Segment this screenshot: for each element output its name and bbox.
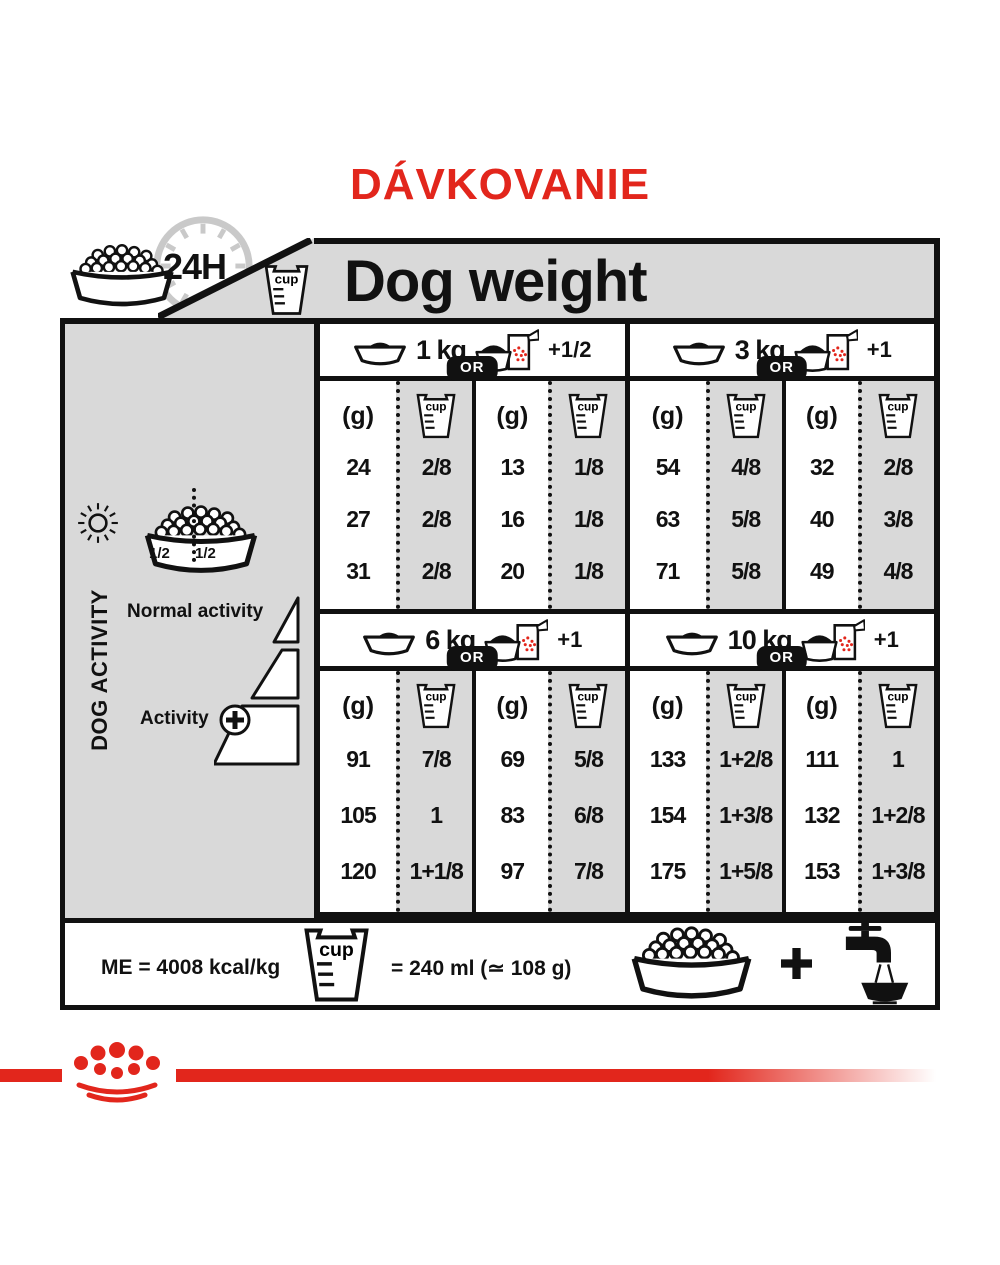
mixed-cup-column: cup 1/8 1/8 1/8 — [548, 381, 624, 609]
crown-logo-icon — [64, 1040, 170, 1106]
measuring-cup-icon: cup — [415, 393, 457, 439]
mixed-grams-column: (g) 69 83 97 — [472, 671, 548, 912]
value-cell: 5/8 — [731, 558, 760, 585]
or-badge: OR — [757, 356, 808, 381]
cup-equivalence: = 240 ml (≃ 108 g) — [391, 956, 571, 981]
split-ration-bowl-icon — [140, 503, 262, 578]
values-10kg: (g) 133 154 175 cup 1+2/8 1+3/8 1+5/8 (g… — [630, 671, 935, 912]
energy-value: ME = 4008 kcal/kg — [101, 956, 280, 980]
value-cell: 7/8 — [574, 858, 603, 885]
svg-text:cup: cup — [735, 399, 756, 413]
value-cell: 1+3/8 — [871, 858, 924, 885]
dog-bowl-icon — [665, 627, 719, 658]
mixed-grams-column: (g) 111 132 153 — [782, 671, 858, 912]
value-cell: 5/8 — [574, 746, 603, 773]
dry-cup-column: cup 1+2/8 1+3/8 1+5/8 — [706, 671, 782, 912]
value-cell: 1/8 — [574, 506, 603, 533]
measuring-cup-icon: cup — [567, 393, 609, 439]
feeding-guide-page: DÁVKOVANIE 24H cup Dog weight — [0, 0, 1000, 1265]
value-cell: 1+2/8 — [719, 746, 772, 773]
value-cell: 2/8 — [422, 558, 451, 585]
or-badge: OR — [757, 646, 808, 671]
moon-icon — [263, 505, 293, 537]
dog-bowl-icon — [672, 337, 726, 368]
values-6kg: (g) 91 105 120 cup 7/8 1 1+1/8 (g) 69 83… — [320, 671, 625, 912]
measuring-cup-icon: cup — [877, 683, 919, 729]
svg-text:cup: cup — [887, 689, 908, 703]
value-cell: 1+5/8 — [719, 858, 772, 885]
values-1kg: (g) 24 27 31 cup 2/8 2/8 2/8 (g) 13 16 2… — [320, 381, 625, 609]
page-title: DÁVKOVANIE — [0, 160, 1000, 210]
half-ration-left: 1/2 — [149, 545, 170, 562]
value-cell: 111 — [805, 746, 838, 773]
value-cell: 2/8 — [883, 454, 912, 481]
grams-header: (g) — [652, 402, 684, 431]
plus-circle-icon — [217, 702, 253, 738]
grams-header: (g) — [496, 402, 528, 431]
svg-text:cup: cup — [426, 689, 447, 703]
grams-header: (g) — [496, 692, 528, 721]
value-cell: 132 — [804, 802, 839, 829]
plus-icon — [781, 948, 812, 979]
sidebar-title: DOG ACTIVITY — [87, 585, 113, 755]
dry-grams-column: (g) 54 63 71 — [630, 381, 706, 609]
dog-weight-header: Dog weight — [314, 238, 940, 318]
measuring-cup-icon: cup — [725, 393, 767, 439]
mixed-cup-column: cup 5/8 6/8 7/8 — [548, 671, 624, 912]
mixed-grams-column: (g) 32 40 49 — [782, 381, 858, 609]
value-cell: 5/8 — [731, 506, 760, 533]
measuring-cup-icon: cup — [415, 683, 457, 729]
value-cell: 63 — [656, 506, 680, 533]
activity-plus-label: Activity — [140, 708, 209, 730]
or-badge: OR — [447, 356, 498, 381]
water-tap-icon — [819, 921, 915, 1006]
value-cell: 69 — [501, 746, 525, 773]
or-badge: OR — [447, 646, 498, 671]
dog-bowl-icon — [353, 337, 407, 368]
extra-pouch-label: +1 — [867, 337, 892, 363]
value-cell: 3/8 — [883, 506, 912, 533]
value-cell: 83 — [501, 802, 525, 829]
value-cell: 175 — [650, 858, 685, 885]
brand-line-right — [176, 1069, 936, 1082]
value-cell: 1 — [892, 746, 904, 773]
value-cell: 7/8 — [422, 746, 451, 773]
value-cell: 120 — [340, 858, 375, 885]
grams-header: (g) — [806, 402, 838, 431]
value-cell: 2/8 — [422, 506, 451, 533]
value-cell: 27 — [346, 506, 370, 533]
svg-text:cup: cup — [887, 399, 908, 413]
mixed-cup-column: cup 2/8 3/8 4/8 — [858, 381, 934, 609]
mixed-grams-column: (g) 13 16 20 — [472, 381, 548, 609]
value-cell: 31 — [346, 558, 370, 585]
value-cell: 97 — [501, 858, 525, 885]
value-cell: 13 — [501, 454, 525, 481]
dry-cup-column: cup 7/8 1 1+1/8 — [396, 671, 472, 912]
value-cell: 4/8 — [731, 454, 760, 481]
dry-grams-column: (g) 133 154 175 — [630, 671, 706, 912]
value-cell: 16 — [501, 506, 525, 533]
svg-text:cup: cup — [426, 399, 447, 413]
value-cell: 105 — [340, 802, 375, 829]
extra-pouch-label: +1/2 — [548, 337, 591, 363]
activity-level-steps — [214, 596, 304, 770]
value-cell: 4/8 — [883, 558, 912, 585]
value-cell: 6/8 — [574, 802, 603, 829]
weight-header-3kg: 3 kg +1 OR — [630, 324, 935, 376]
bowl-plus-pouch-icon — [801, 618, 865, 668]
svg-text:cup: cup — [319, 939, 354, 961]
weight-header-1kg: 1 kg +1/2 OR — [320, 324, 625, 376]
value-cell: 71 — [656, 558, 680, 585]
dog-weight-title: Dog weight — [344, 248, 647, 315]
value-cell: 24 — [346, 454, 370, 481]
extra-pouch-label: +1 — [874, 627, 899, 653]
values-3kg: (g) 54 63 71 cup 4/8 5/8 5/8 (g) 32 40 4… — [630, 381, 935, 609]
value-cell: 32 — [810, 454, 834, 481]
weight-header-10kg: 10 kg +1 OR — [630, 614, 935, 666]
value-cell: 40 — [810, 506, 834, 533]
feeding-table: 1 kg +1/2 OR 3 kg +1 OR (g) 24 27 31 cup… — [314, 318, 940, 918]
kibble-bowl-icon — [625, 924, 758, 1004]
measuring-cup-icon: cup — [725, 683, 767, 729]
mixed-cup-column: cup 1 1+2/8 1+3/8 — [858, 671, 934, 912]
value-cell: 2/8 — [422, 454, 451, 481]
measuring-cup-icon: cup — [263, 264, 310, 316]
value-cell: 133 — [650, 746, 685, 773]
footer-info-bar: ME = 4008 kcal/kg cup = 240 ml (≃ 108 g) — [60, 918, 940, 1010]
grams-header: (g) — [342, 692, 374, 721]
dog-bowl-icon — [362, 627, 416, 658]
value-cell: 1+2/8 — [871, 802, 924, 829]
value-cell: 91 — [346, 746, 370, 773]
value-cell: 1/8 — [574, 558, 603, 585]
svg-text:cup: cup — [578, 689, 599, 703]
extra-pouch-label: +1 — [557, 627, 582, 653]
svg-text:cup: cup — [578, 399, 599, 413]
dog-activity-sidebar: 1/2 1/2 DOG ACTIVITY Normal activity Act… — [60, 318, 314, 918]
grams-header: (g) — [342, 402, 374, 431]
sun-icon — [75, 500, 121, 546]
cup-icon-label: cup — [275, 272, 299, 287]
measuring-cup-icon: cup — [302, 927, 371, 1003]
value-cell: 20 — [501, 558, 525, 585]
value-cell: 154 — [650, 802, 685, 829]
grams-header: (g) — [806, 692, 838, 721]
svg-text:cup: cup — [735, 689, 756, 703]
value-cell: 1+1/8 — [410, 858, 463, 885]
value-cell: 1/8 — [574, 454, 603, 481]
weight-header-6kg: 6 kg +1 OR — [320, 614, 625, 666]
value-cell: 54 — [656, 454, 680, 481]
value-cell: 49 — [810, 558, 834, 585]
half-ration-right: 1/2 — [195, 545, 216, 562]
measuring-cup-icon: cup — [567, 683, 609, 729]
grams-header: (g) — [652, 692, 684, 721]
dry-cup-column: cup 4/8 5/8 5/8 — [706, 381, 782, 609]
measuring-cup-icon: cup — [877, 393, 919, 439]
brand-line-left — [0, 1069, 62, 1082]
dry-cup-column: cup 2/8 2/8 2/8 — [396, 381, 472, 609]
dry-grams-column: (g) 91 105 120 — [320, 671, 396, 912]
dry-grams-column: (g) 24 27 31 — [320, 381, 396, 609]
value-cell: 1 — [430, 802, 442, 829]
value-cell: 1+3/8 — [719, 802, 772, 829]
value-cell: 153 — [804, 858, 839, 885]
